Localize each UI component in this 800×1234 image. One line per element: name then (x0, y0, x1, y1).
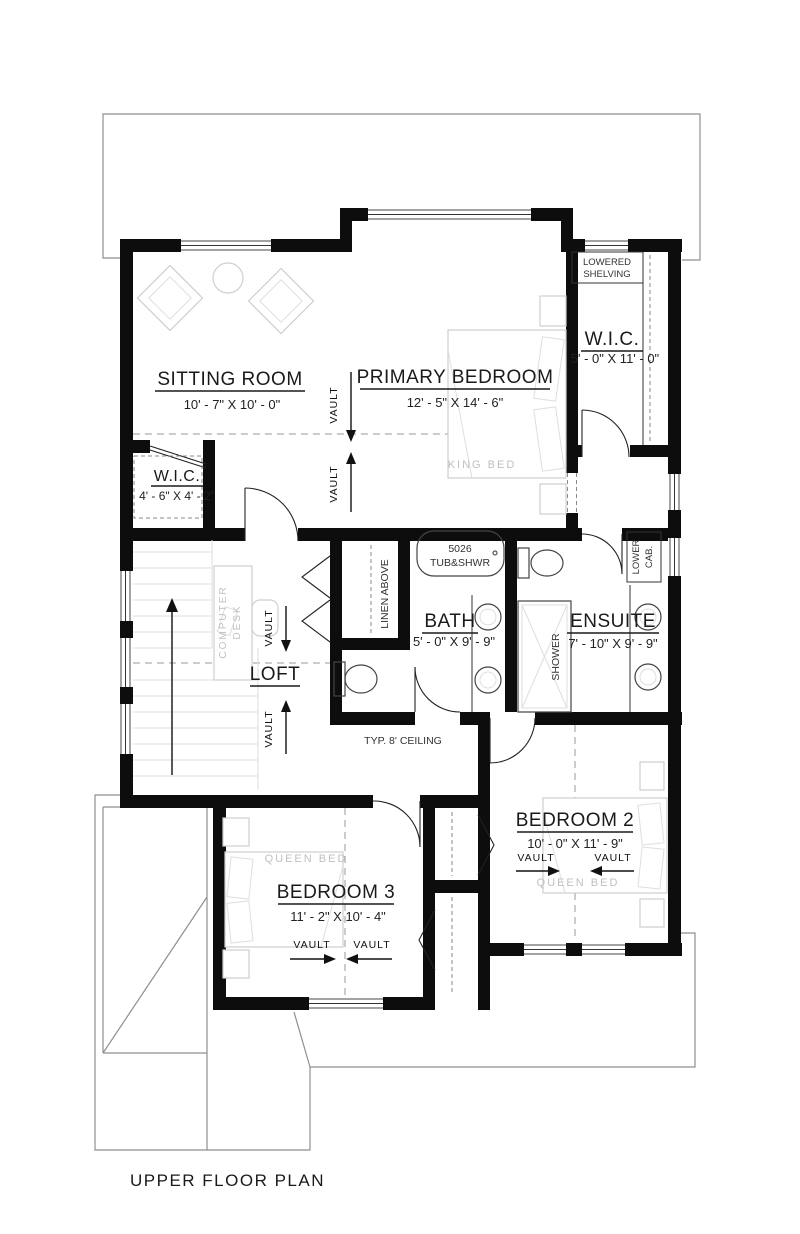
window-left-3 (120, 700, 133, 758)
label-bedroom2: BEDROOM 210' - 0" X 11' - 9" (516, 810, 635, 851)
svg-text:TUB&SHWR: TUB&SHWR (430, 557, 491, 569)
svg-text:10' - 7" X 10' - 0": 10' - 7" X 10' - 0" (184, 397, 281, 412)
vault-bed3-left: VAULT (346, 939, 392, 964)
label-bath: BATH5' - 0" X 9' - 9" (413, 611, 495, 649)
wic-right-door (582, 410, 629, 457)
svg-text:W.I.C.: W.I.C. (154, 468, 201, 485)
svg-text:5' - 0" X 9' - 9": 5' - 0" X 9' - 9" (413, 634, 495, 649)
window-left-2 (120, 634, 133, 691)
ensuite-toilet (518, 548, 563, 578)
window-sitting-top (177, 239, 275, 252)
svg-text:ENSUITE: ENSUITE (570, 611, 656, 632)
floor-plan-drawing: VAULT VAULT VAULT VAULT VAULT VAULT VAUL… (0, 0, 800, 1234)
svg-text:7' - 10" X 9' - 9": 7' - 10" X 9' - 9" (568, 636, 658, 651)
svg-text:SITTING ROOM: SITTING ROOM (157, 369, 302, 390)
svg-text:VAULT: VAULT (353, 939, 390, 951)
vault-loft-up: VAULT (263, 700, 291, 754)
svg-text:11' - 2" X 10' - 4": 11' - 2" X 10' - 4" (290, 909, 386, 924)
svg-text:BEDROOM 3: BEDROOM 3 (277, 882, 396, 903)
lower-cab-label: LOWER (631, 539, 642, 574)
primary-cased-opening (568, 473, 577, 513)
window-right-2 (668, 534, 681, 580)
svg-text:VAULT: VAULT (263, 710, 275, 747)
king-bed-label: KING BED (448, 459, 517, 471)
svg-text:PRIMARY BEDROOM: PRIMARY BEDROOM (357, 367, 554, 388)
svg-text:4' - 6" X 4' - 2": 4' - 6" X 4' - 2" (139, 489, 215, 503)
sitting-chair-right (248, 268, 313, 333)
typ-ceiling-label: TYP. 8' CEILING (364, 735, 442, 747)
svg-text:VAULT: VAULT (517, 852, 554, 864)
tub-model-label: 5026 (448, 543, 472, 555)
bath-vanity (472, 595, 501, 712)
label-ensuite: ENSUITE7' - 10" X 9' - 9" (567, 611, 659, 651)
stairs-up-arrow (166, 598, 178, 775)
bedroom2-door (490, 718, 535, 763)
bedroom3-door (373, 801, 420, 847)
svg-text:BEDROOM 2: BEDROOM 2 (516, 810, 635, 831)
window-primary-top (364, 208, 535, 221)
shower-stall (518, 601, 571, 712)
ensuite-door (582, 534, 622, 574)
sitting-chair-left (137, 265, 202, 330)
svg-text:BATH: BATH (424, 611, 475, 632)
svg-text:12' - 5" X 14' - 6": 12' - 5" X 14' - 6" (407, 395, 504, 410)
svg-text:CAB.: CAB. (644, 546, 655, 568)
svg-text:VAULT: VAULT (594, 852, 631, 864)
svg-text:DESK: DESK (232, 604, 243, 639)
plan-title: UPPER FLOOR PLAN (130, 1171, 325, 1190)
svg-text:VAULT: VAULT (328, 465, 340, 502)
svg-text:VAULT: VAULT (328, 386, 340, 423)
vault-primary-up: VAULT (328, 452, 356, 512)
window-wic-top (581, 239, 632, 252)
svg-text:VAULT: VAULT (293, 939, 330, 951)
svg-text:LOFT: LOFT (250, 664, 301, 685)
wic-left-rod (134, 456, 202, 518)
vault-primary-down: VAULT (328, 372, 356, 442)
svg-text:5' - 0" X 11' - 0": 5' - 0" X 11' - 0" (571, 351, 660, 366)
linen-above-label: LINEN ABOVE (379, 559, 391, 628)
svg-text:W.I.C.: W.I.C. (585, 329, 640, 350)
svg-text:10' - 0" X 11' - 9": 10' - 0" X 11' - 9" (527, 836, 623, 851)
computer-desk-label: COMPUTER (218, 585, 229, 658)
floor-plan-page: VAULT VAULT VAULT VAULT VAULT VAULT VAUL… (0, 0, 800, 1234)
lowered-shelving-label: LOWERED (583, 257, 631, 268)
queen-bed2-label: QUEEN BED (537, 877, 620, 889)
label-wic-right: W.I.C.5' - 0" X 11' - 0" (571, 329, 660, 366)
vault-bed3-right: VAULT (290, 939, 336, 964)
label-loft: LOFT (250, 664, 301, 686)
sitting-table (213, 263, 243, 293)
label-sitting-room: SITTING ROOM10' - 7" X 10' - 0" (155, 369, 305, 412)
window-bedroom3 (305, 997, 387, 1010)
bath-door (415, 667, 460, 712)
window-bedroom2-a (520, 943, 570, 956)
window-left-1 (120, 567, 133, 625)
svg-text:SHELVING: SHELVING (583, 269, 630, 280)
svg-text:VAULT: VAULT (263, 609, 275, 646)
window-right-1 (668, 470, 681, 514)
queen-bed3-label: QUEEN BED (265, 853, 348, 865)
linen-bifold-door (302, 556, 330, 642)
window-bedroom2-b (578, 943, 629, 956)
primary-bedroom-door (245, 488, 298, 541)
wic-left-door (150, 446, 206, 468)
shower-label: SHOWER (550, 633, 562, 681)
